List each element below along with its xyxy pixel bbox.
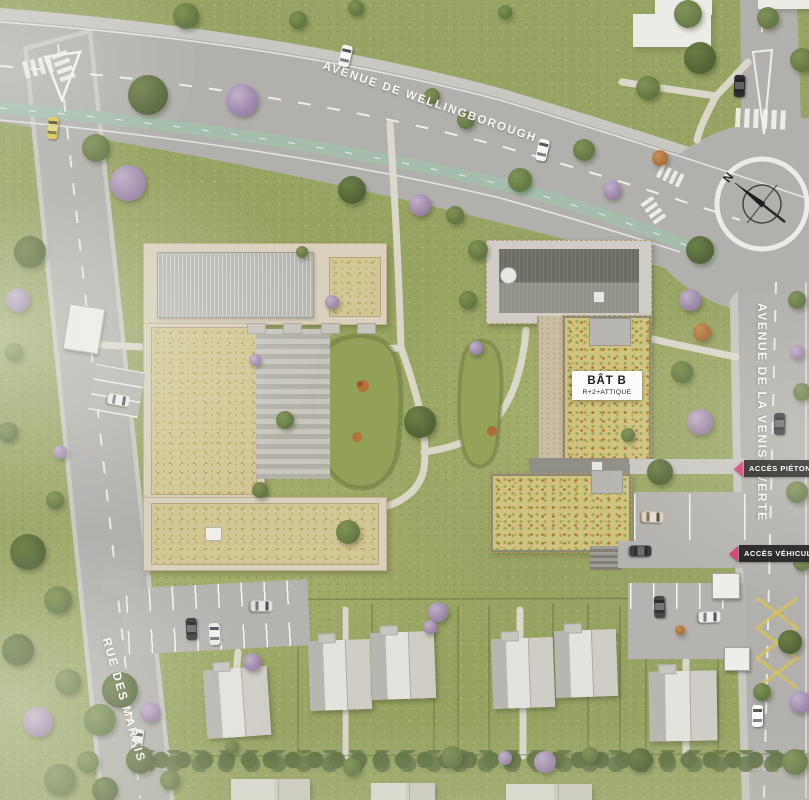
access-arrow-icon [734,461,743,477]
access-pedestrian-label: ACCÈS PIÉTONS [744,460,809,477]
access-arrow-icon [729,546,738,562]
building-b-label: BÂT B R+2+ATTIQUE [572,371,642,400]
access-vehicle-badge: ACCÈS VÉHICULES [729,545,809,562]
site-plan: N [0,0,809,800]
access-vehicle-label: ACCÈS VÉHICULES [739,545,809,562]
building-b-floors: R+2+ATTIQUE [574,389,640,396]
access-pedestrian-badge: ACCÈS PIÉTONS [734,460,809,477]
road-label-rue-des-marais: RUE DES MARAIS [100,636,149,764]
road-label-avenue-venise-verte: AVENUE DE LA VENISE VERTE [755,303,769,522]
road-label-avenue-wellingborough: AVENUE DE WELLINGBOROUGH [321,60,538,145]
labels-layer: AVENUE DE WELLINGBOROUGH AVENUE DE LA VE… [0,0,809,800]
building-b-name: BÂT B [574,375,640,387]
